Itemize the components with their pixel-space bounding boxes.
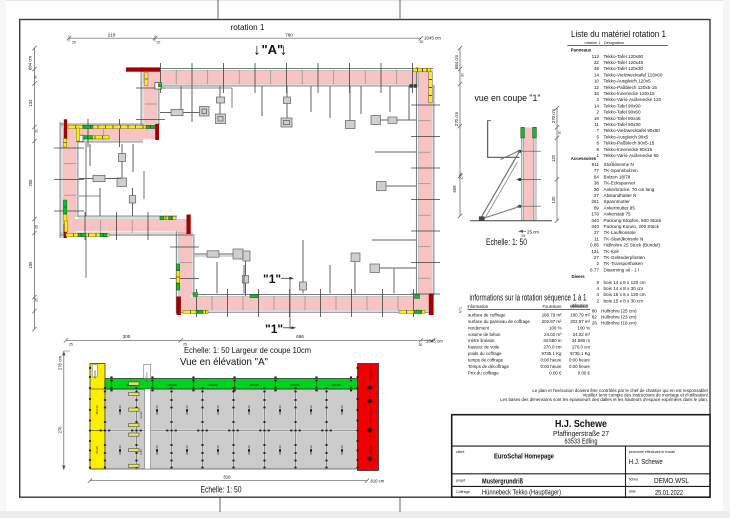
- svg-text:120x30: 120x30: [208, 383, 218, 387]
- svg-text:0:00 heure: 0:00 heure: [541, 358, 563, 363]
- svg-text:4: 4: [596, 286, 599, 291]
- svg-text:30: 30: [461, 73, 465, 77]
- svg-text:TK-Eckspanner: TK-Eckspanner: [604, 181, 636, 186]
- svg-text:14: 14: [594, 72, 600, 77]
- svg-text:client: client: [456, 450, 464, 454]
- svg-text:TK-Keil: TK-Keil: [604, 249, 619, 254]
- svg-text:180.79 m²: 180.79 m²: [542, 312, 562, 317]
- svg-text:120: 120: [551, 196, 556, 204]
- svg-text:Abstandhalter N: Abstandhalter N: [604, 193, 637, 198]
- svg-text:Ankermutter 85: Ankermutter 85: [604, 205, 636, 210]
- svg-text:0.00 €: 0.00 €: [578, 370, 591, 375]
- svg-text:Mustergrundriß: Mustergrundriß: [482, 476, 523, 485]
- svg-text:utilisation: utilisation: [571, 303, 589, 308]
- svg-text:Vue en élévation "A": Vue en élévation "A": [180, 357, 268, 368]
- svg-text:90x30: 90x30: [369, 370, 373, 378]
- svg-text:340: 340: [591, 224, 599, 229]
- svg-text:Tekko-Innenecke 90x15: Tekko-Innenecke 90x15: [604, 147, 653, 152]
- svg-text:270 cm: 270 cm: [58, 355, 63, 370]
- svg-text:82: 82: [592, 314, 598, 319]
- svg-text:Hüllrohre (18 cm): Hüllrohre (18 cm): [601, 321, 637, 326]
- svg-text:informations sur la rotation: informations sur la rotation séquence 1 …: [470, 293, 587, 304]
- svg-text:DEMO.WSL: DEMO.WSL: [654, 476, 689, 485]
- svg-text:bois 14 x 8 x 120 cm: bois 14 x 8 x 120 cm: [604, 280, 646, 285]
- svg-text:45x120: 45x120: [95, 405, 99, 415]
- svg-text:↓: ↓: [280, 42, 288, 59]
- svg-text:TK-Laufkonsole: TK-Laufkonsole: [604, 230, 637, 235]
- svg-text:fichier: fichier: [629, 478, 639, 482]
- svg-text:rendement: rendement: [468, 325, 490, 330]
- svg-text:9735.1 Kg: 9735.1 Kg: [570, 351, 591, 356]
- svg-text:rotation 1: rotation 1: [231, 22, 265, 32]
- svg-text:Hüllrohre (25 cm): Hüllrohre (25 cm): [601, 308, 637, 313]
- svg-text:30: 30: [420, 40, 424, 44]
- svg-text:Tekko-Ausgleich 90x5: Tekko-Ausgleich 90x5: [604, 134, 649, 139]
- svg-text:vue en coupe "1": vue en coupe "1": [475, 93, 541, 103]
- svg-text:Tekko-Tafel 90x30: Tekko-Tafel 90x30: [604, 122, 641, 127]
- svg-text:H.J. Schewe: H.J. Schewe: [555, 418, 607, 430]
- svg-text:Spannmutter: Spannmutter: [604, 199, 631, 204]
- svg-text:80: 80: [592, 308, 598, 313]
- svg-text:2: 2: [596, 110, 599, 115]
- svg-text:bois 14 x 8 x 30 cm: bois 14 x 8 x 30 cm: [604, 286, 644, 291]
- svg-text:134: 134: [28, 99, 33, 107]
- svg-text:25: 25: [72, 41, 76, 45]
- svg-text:16: 16: [594, 91, 600, 96]
- svg-text:6: 6: [596, 141, 599, 146]
- svg-text:90x120: 90x120: [369, 407, 373, 417]
- svg-text:mètre linéaire: mètre linéaire: [468, 338, 495, 343]
- svg-text:270 cm: 270 cm: [551, 108, 556, 123]
- svg-text:Tekko-Vielzwecktafel 90x60: Tekko-Vielzwecktafel 90x60: [604, 128, 661, 133]
- svg-text:11: 11: [594, 236, 599, 241]
- svg-text:270.0 cm: 270.0 cm: [543, 345, 561, 350]
- svg-text:2: 2: [596, 261, 599, 266]
- svg-text:7: 7: [596, 128, 599, 133]
- svg-text:Tekko-Tafel 90x60: Tekko-Tafel 90x60: [604, 110, 641, 115]
- svg-text:0.00 €: 0.00 €: [549, 370, 562, 375]
- svg-text:5: 5: [596, 134, 599, 139]
- svg-text:H.J. Schewe: H.J. Schewe: [629, 457, 663, 466]
- svg-text:25 cm: 25 cm: [527, 229, 539, 234]
- svg-text:Tekko-Paßblech 120x5-15: Tekko-Paßblech 120x5-15: [604, 85, 658, 90]
- svg-text:810 cm: 810 cm: [371, 478, 385, 483]
- svg-text:30: 30: [594, 187, 600, 192]
- svg-text:surface de coffrage: surface de coffrage: [468, 312, 506, 317]
- svg-text:Hünnebeck Tekko (Hauptlager): Hünnebeck Tekko (Hauptlager): [482, 488, 561, 497]
- svg-text:911: 911: [592, 162, 600, 167]
- svg-text:48: 48: [594, 66, 600, 71]
- svg-text:63533 Edling: 63533 Edling: [565, 437, 598, 446]
- svg-text:89: 89: [594, 205, 600, 210]
- svg-text:30: 30: [34, 75, 38, 79]
- svg-text:date: date: [629, 489, 636, 493]
- svg-text:Tekko-Vielzwecktafel 120x60: Tekko-Vielzwecktafel 120x60: [604, 72, 663, 77]
- svg-text:1045 cm: 1045 cm: [424, 36, 441, 41]
- svg-text:38: 38: [594, 181, 600, 186]
- svg-text:8: 8: [596, 147, 599, 152]
- svg-text:Accessoires: Accessoires: [571, 156, 597, 161]
- svg-text:Tekko-Vario-Außenecke 120: Tekko-Vario-Außenecke 120: [604, 97, 662, 102]
- svg-text:1045 cm: 1045 cm: [426, 339, 443, 344]
- svg-text:information: information: [468, 304, 489, 309]
- svg-text:27: 27: [594, 255, 600, 260]
- svg-text:340: 340: [591, 218, 599, 223]
- svg-text:25: 25: [35, 225, 39, 229]
- svg-text:270: 270: [459, 172, 464, 180]
- svg-text:120x30: 120x30: [249, 383, 259, 387]
- svg-text:TK-Transporthaken: TK-Transporthaken: [604, 261, 644, 266]
- svg-text:↓: ↓: [253, 42, 261, 59]
- svg-text:TK-Geländerpfosten: TK-Geländerpfosten: [604, 255, 646, 260]
- svg-text:0:00 heure: 0:00 heure: [569, 358, 591, 363]
- svg-text:TK-Spannbolzen: TK-Spannbolzen: [604, 168, 639, 173]
- svg-text:Disarming oil - 1 l: Disarming oil - 1 l: [604, 267, 639, 272]
- svg-text:EuroSchal Homepage: EuroSchal Homepage: [494, 452, 554, 461]
- svg-text:0.85: 0.85: [590, 243, 599, 248]
- svg-text:6.77: 6.77: [590, 267, 599, 272]
- svg-text:120x30: 120x30: [331, 383, 341, 387]
- svg-text:27: 27: [594, 193, 600, 198]
- svg-text:120x30: 120x30: [167, 383, 177, 387]
- svg-text:Packung Konen, 200 Stück: Packung Konen, 200 Stück: [604, 224, 660, 229]
- svg-text:5x120: 5x120: [139, 411, 143, 419]
- svg-text:Tekko-Paßblech 90x5-15: Tekko-Paßblech 90x5-15: [604, 141, 655, 146]
- svg-text:84: 84: [594, 174, 600, 179]
- svg-text:Panneaux: Panneaux: [571, 48, 592, 53]
- svg-text:30: 30: [419, 343, 423, 347]
- svg-text:Echelle: 1: 50: Echelle: 1: 50: [201, 485, 242, 495]
- svg-text:120x30: 120x30: [290, 383, 300, 387]
- svg-text:45x90: 45x90: [95, 446, 99, 455]
- svg-text:surface du panneau de coffrage: surface du panneau de coffrage: [468, 319, 530, 324]
- svg-text:1: 1: [596, 153, 599, 158]
- svg-text:Ankerbrücke, 70 cm lang: Ankerbrücke, 70 cm lang: [604, 187, 655, 192]
- svg-text:Temps de décoffrage: Temps de décoffrage: [468, 364, 509, 369]
- svg-text:14: 14: [594, 103, 600, 108]
- svg-text:180.79 m²: 180.79 m²: [570, 312, 590, 317]
- svg-text:24.02 m³: 24.02 m³: [544, 332, 562, 337]
- svg-text:2: 2: [596, 298, 599, 303]
- svg-text:659: 659: [452, 185, 457, 193]
- svg-text:24.02 m³: 24.02 m³: [573, 332, 591, 337]
- svg-text:202.97 m²: 202.97 m²: [542, 319, 562, 324]
- svg-text:34.580 m: 34.580 m: [543, 338, 562, 343]
- svg-text:9735.1 Kg: 9735.1 Kg: [541, 351, 562, 356]
- svg-text:11: 11: [594, 122, 599, 127]
- svg-text:Tekko-Ausgleich 120x5: Tekko-Ausgleich 120x5: [604, 79, 652, 84]
- svg-text:N°1: N°1: [459, 307, 463, 313]
- svg-text:300: 300: [123, 334, 131, 339]
- svg-text:Tekko-Tafel 90x90: Tekko-Tafel 90x90: [604, 103, 641, 108]
- svg-text:Coffrage: Coffrage: [456, 490, 470, 494]
- svg-text:270: 270: [58, 426, 63, 434]
- svg-text:20: 20: [157, 41, 161, 45]
- svg-text:bois 15 x 8 x 120 cm: bois 15 x 8 x 120 cm: [604, 292, 646, 297]
- svg-text:personne effectuant le travail: personne effectuant le travail: [629, 450, 675, 454]
- svg-text:77: 77: [594, 168, 600, 173]
- svg-text:131: 131: [591, 249, 599, 254]
- svg-text:Divers: Divers: [572, 274, 586, 279]
- svg-text:20: 20: [35, 129, 39, 133]
- svg-text:26: 26: [592, 321, 598, 326]
- svg-text:12: 12: [594, 85, 600, 90]
- svg-text:100 %: 100 %: [549, 325, 562, 330]
- svg-text:poids du coffrage: poids du coffrage: [468, 351, 502, 356]
- svg-text:210: 210: [108, 33, 116, 38]
- svg-text:temps de coffrage: temps de coffrage: [468, 358, 504, 363]
- svg-text:Tekko-Innenecke 120x15: Tekko-Innenecke 120x15: [604, 91, 656, 96]
- svg-text:Les bases des dimensions sont: Les bases des dimensions sont les épaiss…: [500, 397, 708, 402]
- svg-text:270 cm: 270 cm: [454, 111, 459, 126]
- svg-text:Désignation: Désignation: [604, 41, 624, 45]
- svg-text:255: 255: [28, 179, 33, 187]
- svg-text:100 %: 100 %: [578, 325, 591, 330]
- svg-text:0:00 heure: 0:00 heure: [569, 364, 591, 369]
- svg-text:Stoßklemme N: Stoßklemme N: [604, 162, 634, 167]
- svg-text:Liste du matériel rotation 1: Liste du matériel rotation 1: [571, 29, 666, 40]
- svg-text:27: 27: [594, 230, 600, 235]
- svg-text:30: 30: [558, 131, 562, 135]
- svg-text:8: 8: [596, 280, 599, 285]
- svg-text:16: 16: [594, 116, 600, 121]
- svg-text:25: 25: [69, 342, 73, 346]
- svg-text:Tekko-Vario-Außenecke 60: Tekko-Vario-Außenecke 60: [604, 153, 660, 158]
- svg-text:32: 32: [594, 60, 600, 65]
- svg-text:hauteur de voile: hauteur de voile: [468, 345, 500, 350]
- svg-text:10: 10: [594, 79, 600, 84]
- svg-text:rotation 1: rotation 1: [585, 41, 601, 45]
- svg-text:Tekko-Tafel 90x45: Tekko-Tafel 90x45: [604, 116, 641, 121]
- svg-text:projet: projet: [456, 478, 465, 482]
- svg-text:666: 666: [296, 334, 304, 339]
- svg-text:bois 15 x 8 x 30 cm: bois 15 x 8 x 30 cm: [604, 298, 644, 303]
- svg-text:25: 25: [35, 298, 39, 302]
- svg-text:261: 261: [591, 199, 599, 204]
- svg-text:120: 120: [551, 154, 556, 162]
- svg-text:25.01.2022: 25.01.2022: [655, 488, 683, 497]
- svg-text:760: 760: [285, 33, 293, 38]
- svg-text:170: 170: [591, 212, 599, 217]
- svg-text:202.97 m²: 202.97 m²: [570, 319, 590, 324]
- svg-text:Tekko-Tafel 120x90: Tekko-Tafel 120x90: [604, 54, 644, 59]
- svg-text:684 cm: 684 cm: [454, 54, 459, 69]
- svg-text:Prix du coffrage: Prix du coffrage: [468, 370, 499, 375]
- svg-text:Hüllrohre 25 Stück (Bündel): Hüllrohre 25 Stück (Bündel): [604, 243, 661, 248]
- svg-text:112: 112: [592, 54, 600, 59]
- svg-text:Hüllrohre (23 cm): Hüllrohre (23 cm): [601, 314, 637, 319]
- svg-text:195: 195: [28, 261, 33, 269]
- svg-text:TK-Standkonsole N: TK-Standkonsole N: [604, 236, 644, 241]
- svg-text:4: 4: [596, 292, 599, 297]
- svg-text:Ankerstab 75: Ankerstab 75: [604, 212, 632, 217]
- svg-text:Packung Stopfen, 500 Stück: Packung Stopfen, 500 Stück: [604, 218, 663, 223]
- svg-text:90x120: 90x120: [369, 445, 373, 455]
- svg-text:Tekko-Tafel 120x30: Tekko-Tafel 120x30: [604, 66, 644, 71]
- svg-text:Echelle: 1: 50: Echelle: 1: 50: [486, 237, 527, 247]
- svg-text:Tekko-Tafel 120x45: Tekko-Tafel 120x45: [604, 60, 644, 65]
- svg-text:2: 2: [596, 97, 599, 102]
- svg-text:684 cm: 684 cm: [28, 55, 33, 70]
- svg-text:volume de béton: volume de béton: [468, 332, 501, 337]
- svg-text:le 15cm: le 15cm: [145, 372, 149, 381]
- svg-text:5x90: 5x90: [139, 449, 143, 455]
- svg-text:Bolzen 18/78: Bolzen 18/78: [604, 174, 631, 179]
- svg-text:Fourniture: Fourniture: [543, 304, 563, 309]
- svg-text:45x90: 45x90: [93, 370, 97, 379]
- svg-text:"1": "1": [265, 322, 283, 336]
- svg-text:34.580 m: 34.580 m: [572, 338, 591, 343]
- svg-text:Echelle: 1: 50 Largeur de co: Echelle: 1: 50 Largeur de coupe 10cm: [184, 346, 311, 355]
- svg-text:"1": "1": [263, 272, 281, 286]
- svg-text:0:00 heure: 0:00 heure: [541, 364, 563, 369]
- svg-text:810: 810: [224, 475, 232, 480]
- svg-text:270.0 cm: 270.0 cm: [572, 345, 590, 350]
